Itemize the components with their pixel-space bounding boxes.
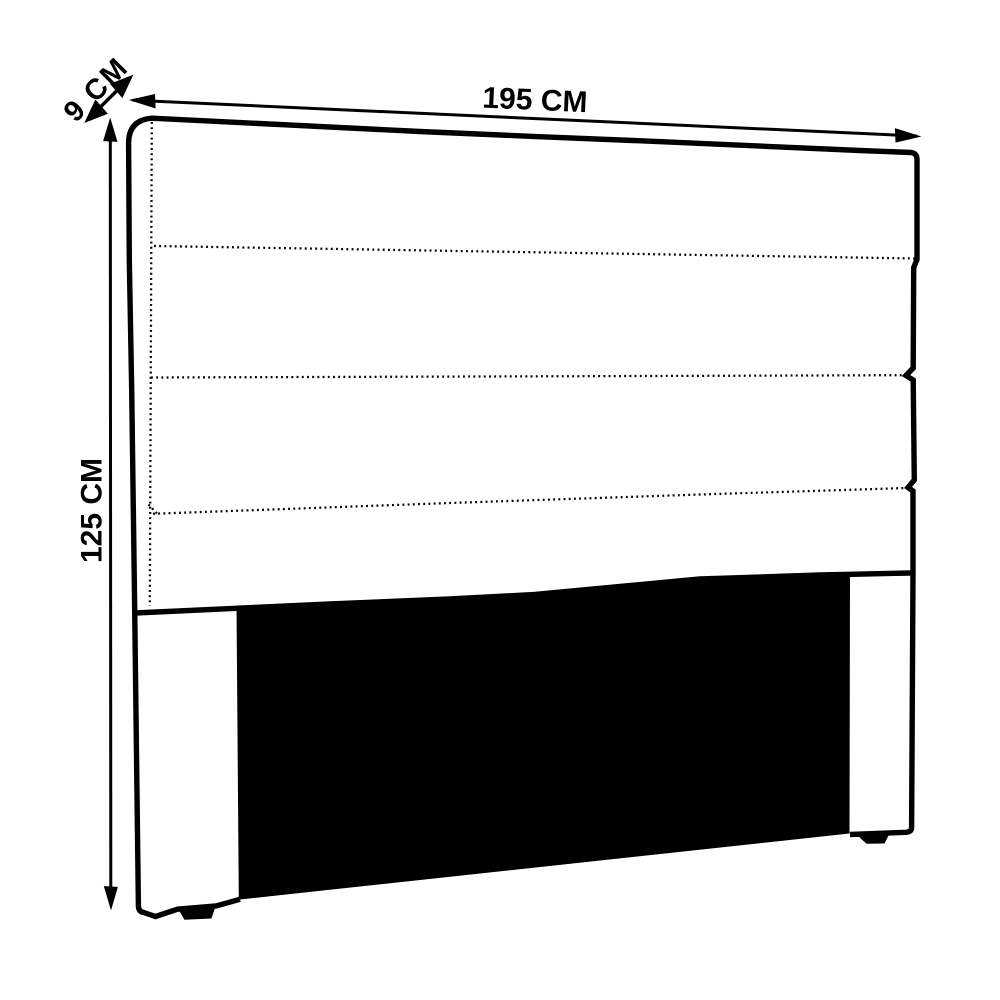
svg-text:195 CM: 195 CM: [482, 82, 588, 120]
svg-text:125 CM: 125 CM: [76, 458, 109, 563]
